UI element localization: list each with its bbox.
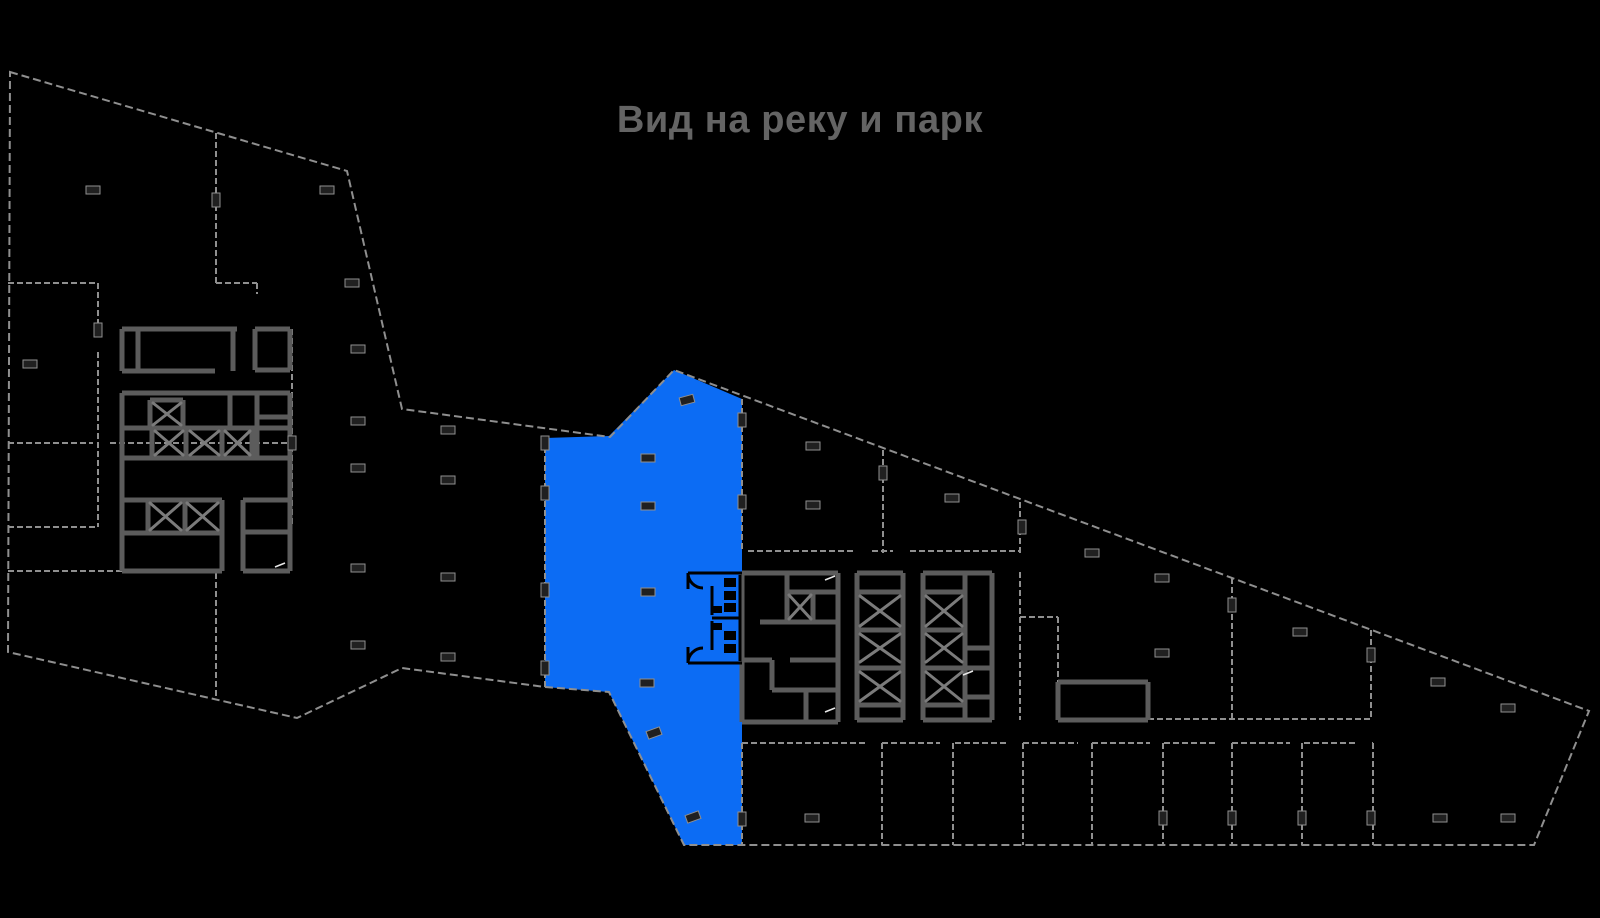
core-left: [122, 329, 290, 571]
floorplan-canvas: Вид на реку и парк: [0, 0, 1600, 918]
shaft-x-marks-left: [150, 403, 250, 530]
core-right: [742, 573, 1148, 722]
floorplan-drawing: [0, 0, 1600, 918]
